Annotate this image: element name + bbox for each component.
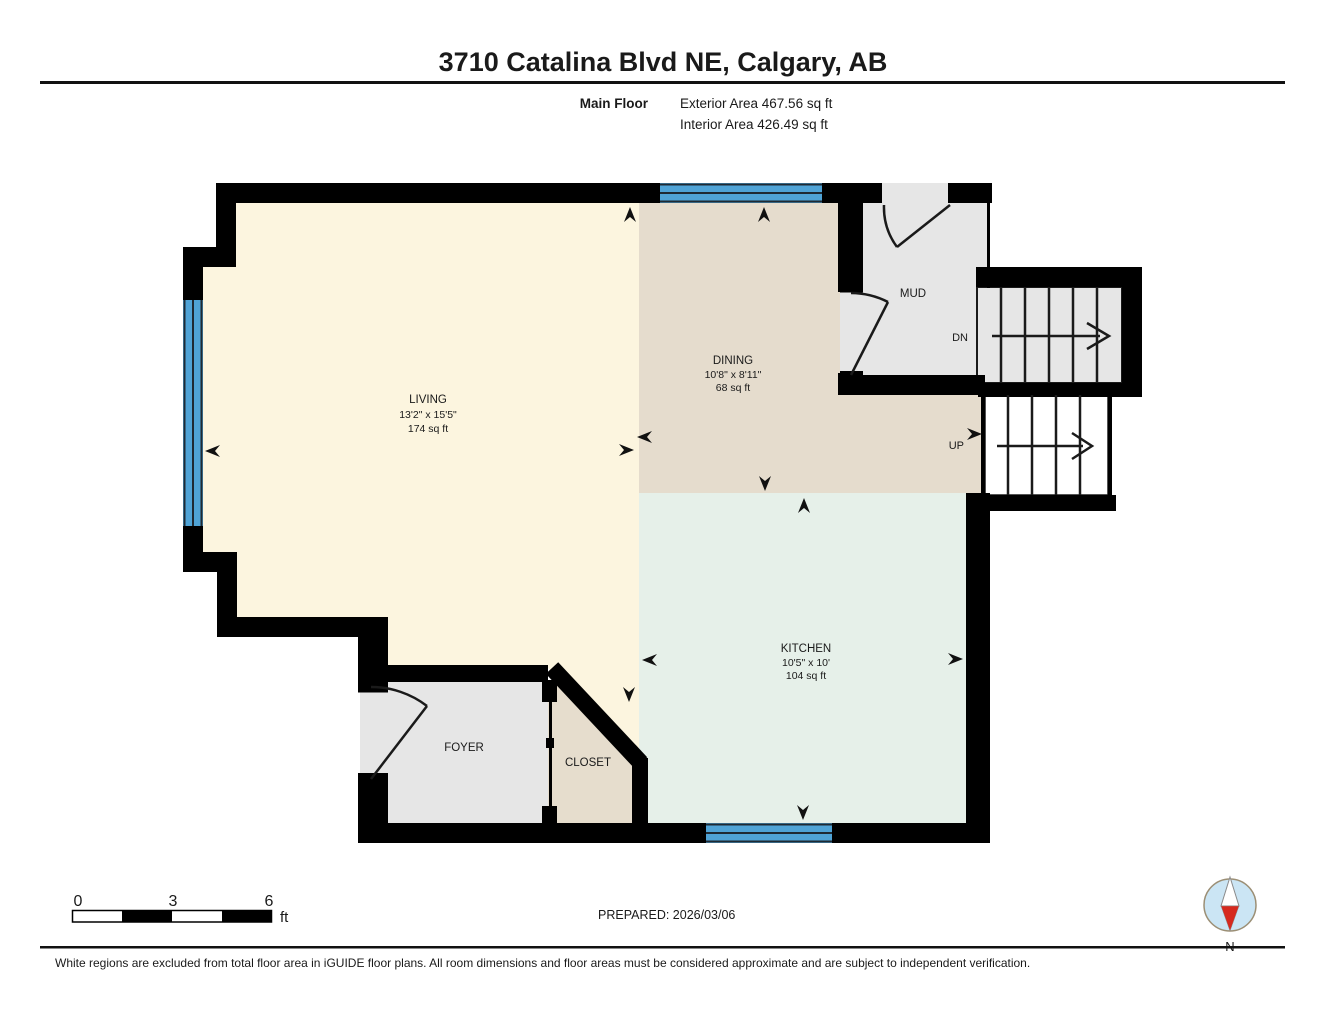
header: 3710 Catalina Blvd NE, Calgary, AB Main … — [40, 47, 1285, 132]
stairs-up-label: UP — [949, 440, 964, 452]
foyer-label: FOYER — [444, 742, 484, 754]
prepared-date: PREPARED: 2026/03/06 — [598, 908, 735, 922]
interior-area-label: Interior Area 426.49 sq ft — [680, 117, 828, 132]
scale-bar-segment — [122, 910, 172, 923]
wall-mud-bottom — [838, 375, 985, 395]
wall-living-foyer — [385, 665, 548, 682]
wall-up-stairs-left-thin — [981, 395, 985, 495]
exterior-area-label: Exterior Area 467.56 sq ft — [680, 96, 833, 111]
stairs-down-label: DN — [952, 332, 968, 344]
wall-dn-stairs-top — [976, 267, 1142, 287]
closet-door-handle — [546, 738, 554, 748]
compass: N — [1204, 877, 1256, 954]
living-dims: 13'2" x 15'5" — [399, 409, 457, 421]
floorplan-page: 3710 Catalina Blvd NE, Calgary, AB Main … — [0, 0, 1325, 1024]
wall-foyer-left-lower — [358, 775, 388, 827]
dining-label: DINING — [713, 355, 753, 367]
wall-mud-left — [838, 195, 863, 292]
scale-bar: 0 3 6 ft — [73, 893, 290, 926]
wall-foyer-left-upper — [358, 617, 388, 692]
window-living-left — [183, 300, 203, 526]
wall-up-stairs-bottom — [966, 495, 1116, 511]
scale-tick-3: 3 — [169, 893, 178, 910]
kitchen-dims: 10'5" x 10' — [782, 657, 830, 669]
mud-label: MUD — [900, 288, 926, 300]
wall-kitchen-right — [966, 493, 990, 843]
kitchen-label: KITCHEN — [781, 643, 831, 655]
wall-up-stairs-right-thin — [1108, 395, 1112, 497]
disclaimer-text: White regions are excluded from total fl… — [55, 956, 1030, 970]
wall-dn-stairs-right — [1122, 267, 1142, 397]
window-kitchen-bottom — [706, 823, 832, 843]
floor-plan-svg: 3710 Catalina Blvd NE, Calgary, AB Main … — [0, 0, 1325, 1024]
page-title: 3710 Catalina Blvd NE, Calgary, AB — [439, 47, 888, 77]
scale-tick-6: 6 — [265, 893, 274, 910]
wall-left-jamb-upper — [183, 255, 203, 302]
wall-mud-top-right — [948, 183, 992, 203]
footer-divider — [40, 946, 1285, 949]
scale-bar-segment — [222, 910, 272, 923]
wall-bottom-left — [358, 823, 706, 843]
header-divider — [40, 81, 1285, 84]
kitchen-area: 104 sq ft — [786, 670, 826, 682]
dining-dims: 10'8" x 8'11" — [705, 369, 762, 381]
closet-sliding-door — [549, 700, 552, 808]
jamb-foyer-top — [358, 690, 388, 693]
wall-closet-divider-bottom — [542, 806, 557, 827]
dining-area: 68 sq ft — [716, 382, 751, 394]
scale-unit: ft — [280, 909, 289, 926]
living-area: 174 sq ft — [408, 423, 448, 435]
scale-tick-0: 0 — [74, 893, 83, 910]
wall-top-left — [216, 183, 662, 203]
wall-stairs-divider — [978, 383, 1142, 397]
wall-mud-right-thin — [987, 203, 990, 288]
living-label: LIVING — [409, 394, 447, 406]
floor-label: Main Floor — [580, 96, 649, 111]
closet-label: CLOSET — [565, 757, 611, 769]
wall-left-upper — [216, 183, 236, 257]
window-dining-top — [660, 183, 822, 203]
